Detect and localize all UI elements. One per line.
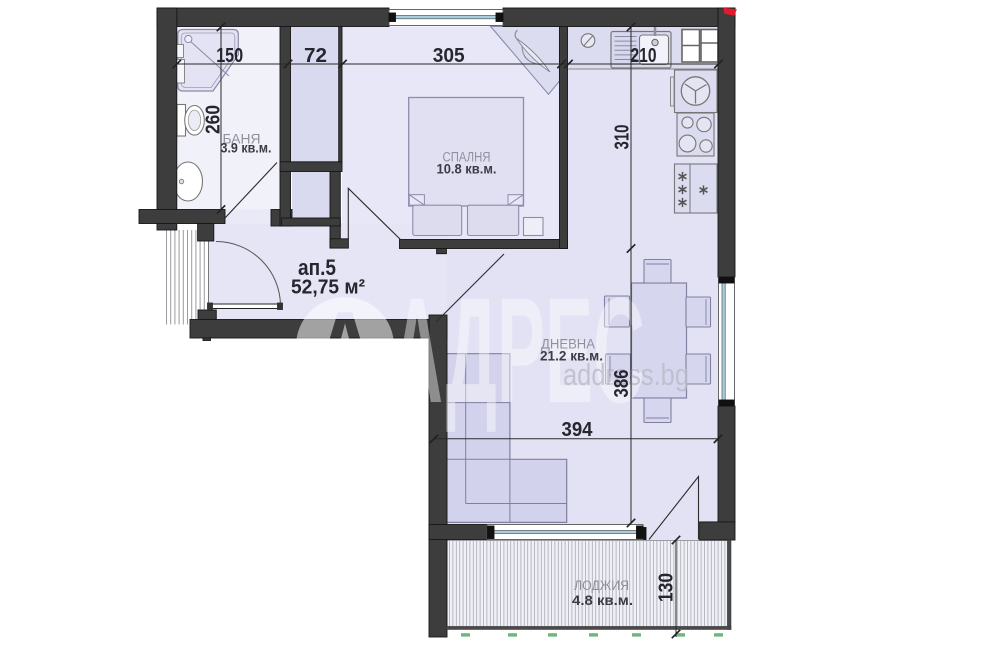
svg-text:ЛОДЖИЯ: ЛОДЖИЯ <box>574 578 629 593</box>
svg-text:130: 130 <box>655 573 678 602</box>
svg-text:394: 394 <box>562 418 594 441</box>
svg-text:3.9 кв.м.: 3.9 кв.м. <box>221 140 272 156</box>
svg-text:21.2 кв.м.: 21.2 кв.м. <box>540 348 603 364</box>
svg-text:10.8 кв.м.: 10.8 кв.м. <box>437 161 497 177</box>
svg-text:52,75 м²: 52,75 м² <box>291 277 365 299</box>
svg-text:72: 72 <box>304 44 327 67</box>
svg-text:305: 305 <box>433 44 465 67</box>
svg-text:4.8 кв.м.: 4.8 кв.м. <box>572 592 633 608</box>
svg-text:260: 260 <box>202 105 225 134</box>
svg-text:386: 386 <box>610 370 633 398</box>
svg-text:210: 210 <box>631 44 657 67</box>
svg-text:150: 150 <box>216 44 243 67</box>
svg-text:310: 310 <box>611 125 634 150</box>
svg-text:АДРЕС: АДРЕС <box>391 266 645 434</box>
